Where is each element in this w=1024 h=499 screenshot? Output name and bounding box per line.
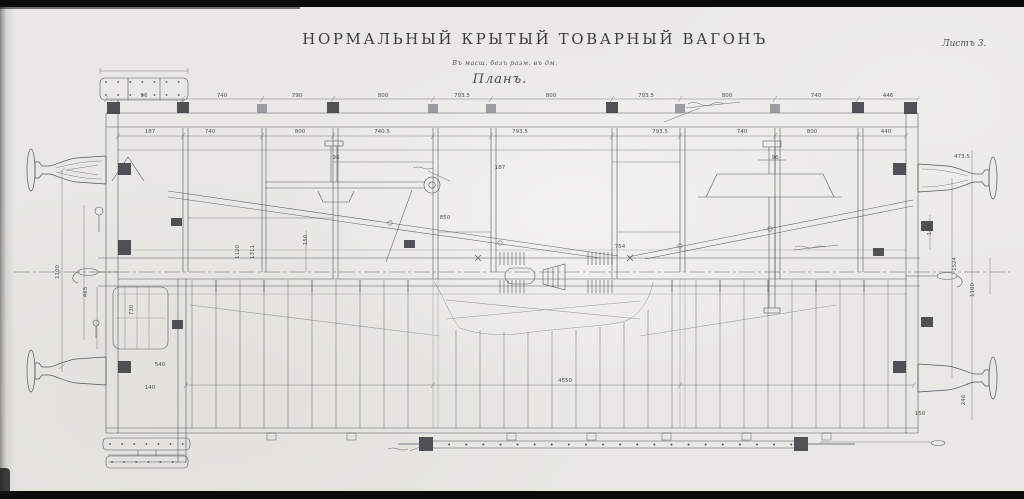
dimension-label: 187 (145, 129, 156, 135)
dimension-label: 793.5 (512, 129, 528, 135)
dimension-label: 4550 (558, 378, 572, 384)
dimension-label: 800 (722, 93, 733, 99)
dimension-label: 730 (129, 305, 135, 316)
dimension-label: 150 (303, 235, 309, 246)
scan-border-top (0, 0, 1024, 7)
dimension-label: 793.5 (454, 93, 470, 99)
dimension-label: 740 (205, 129, 216, 135)
dimension-label: 446 (883, 93, 894, 99)
dimension-label: 140 (927, 225, 933, 236)
dimension-label: 850 (440, 215, 451, 221)
dimension-label: 140 (145, 385, 156, 391)
dimension-label: 96 (772, 155, 779, 161)
dimension-label: 740 (737, 129, 748, 135)
dimension-label: 187 (495, 165, 506, 171)
scan-border-notch (0, 468, 10, 494)
dimension-label: 440 (881, 129, 892, 135)
dimension-label: 754 (615, 244, 626, 250)
dimension-label: 1100 (970, 283, 976, 297)
dimension-label: 473.5 (954, 154, 970, 160)
dimension-label: 96 (333, 155, 340, 161)
dimension-label: 465 (83, 287, 89, 298)
dimension-label: 1120 (235, 245, 241, 259)
dimension-label: 800 (546, 93, 557, 99)
dimension-label: 800 (807, 129, 818, 135)
dimension-labels: 96740790800793.5800793.58007404461877408… (0, 0, 1024, 499)
dimension-label: 540 (155, 362, 166, 368)
scan-border-bottom (0, 491, 1024, 499)
dimension-label: 246 (961, 395, 967, 406)
dimension-label: 793.5 (652, 129, 668, 135)
dimension-label: 740.5 (374, 129, 390, 135)
scanned-drawing-page: НОРМАЛЬНЫЙ КРЫТЫЙ ТОВАРНЫЙ ВАГОНЪ Въ мас… (0, 0, 1024, 499)
dimension-label: 150 (915, 411, 926, 417)
dimension-label: 1100 (55, 265, 61, 279)
dimension-label: 740 (811, 93, 822, 99)
dimension-label: 790 (292, 93, 303, 99)
dimension-label: 800 (295, 129, 306, 135)
dimension-label: 1524 (952, 257, 958, 271)
dimension-label: 96 (141, 93, 148, 99)
dimension-label: 793.5 (638, 93, 654, 99)
dimension-label: 800 (378, 93, 389, 99)
dimension-label: 740 (217, 93, 228, 99)
dimension-label: 1311 (250, 245, 256, 259)
